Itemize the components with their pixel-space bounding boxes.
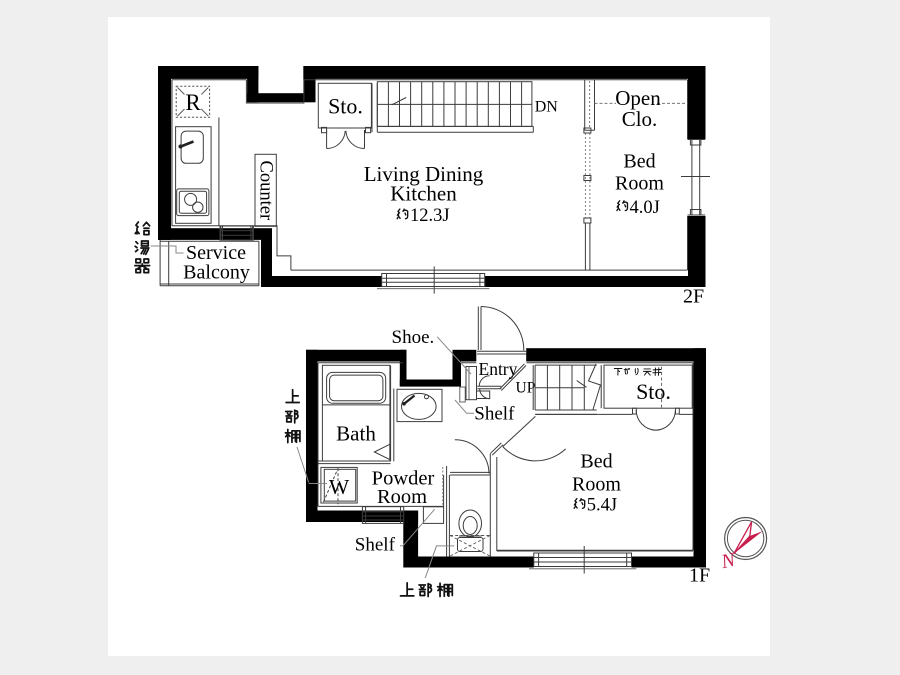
svg-text:1F: 1F	[689, 565, 710, 587]
svg-text:Shelf: Shelf	[355, 535, 396, 556]
svg-text:Sto.: Sto.	[328, 94, 363, 119]
svg-text:Clo.: Clo.	[622, 107, 658, 131]
svg-text:Bed: Bed	[623, 151, 655, 173]
svg-text:Shoe.: Shoe.	[392, 327, 435, 348]
svg-text:5.4J: 5.4J	[587, 495, 617, 515]
svg-text:W: W	[329, 475, 350, 499]
svg-text:Room: Room	[615, 173, 664, 195]
svg-text:UP: UP	[516, 379, 536, 396]
svg-text:12.3J: 12.3J	[410, 206, 450, 226]
svg-text:Kitchen: Kitchen	[390, 182, 457, 206]
svg-text:Bed: Bed	[580, 450, 612, 472]
svg-text:Shelf: Shelf	[474, 404, 515, 425]
svg-text:2F: 2F	[683, 286, 704, 308]
svg-text:4.0J: 4.0J	[630, 198, 660, 218]
svg-text:Sto.: Sto.	[636, 379, 671, 404]
svg-text:Counter: Counter	[256, 160, 276, 220]
svg-text:Bath: Bath	[336, 422, 376, 446]
svg-text:Room: Room	[572, 473, 621, 495]
svg-text:Room: Room	[377, 486, 427, 508]
svg-text:Entry: Entry	[479, 359, 518, 379]
svg-text:R: R	[185, 90, 201, 115]
svg-text:DN: DN	[535, 99, 559, 116]
svg-text:Balcony: Balcony	[183, 262, 250, 284]
